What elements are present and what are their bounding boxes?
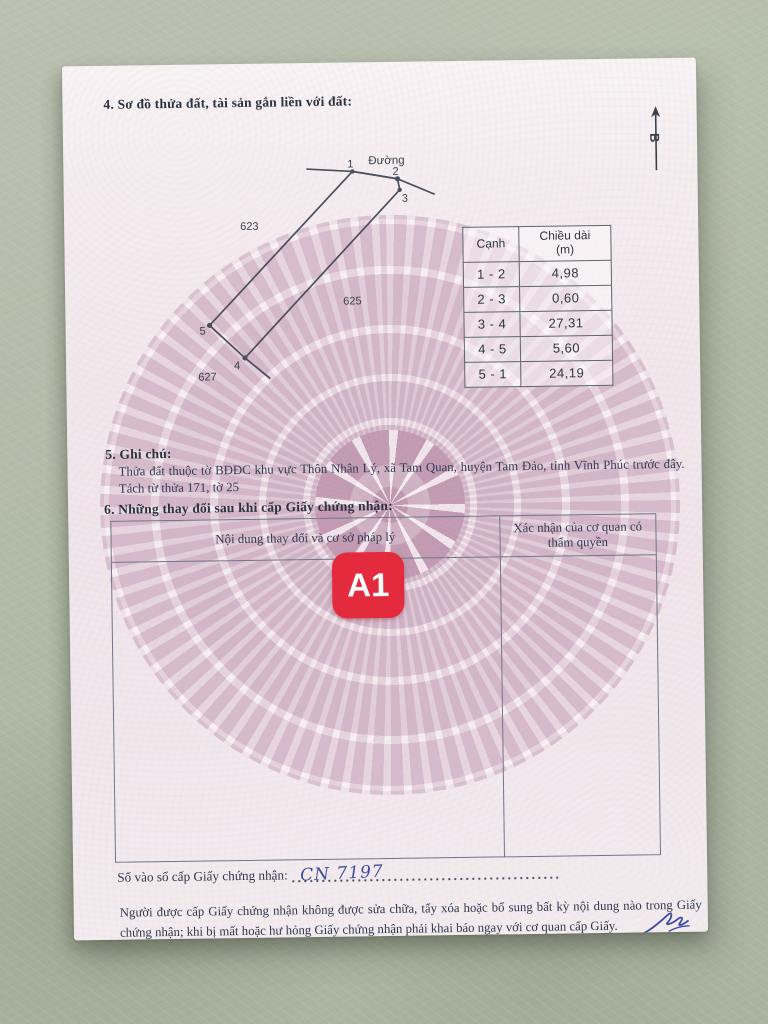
edge-cell: 3 - 4 <box>464 311 520 337</box>
register-number-line: Số vào sổ cấp Giấy chứng nhận: CN 7197 <box>117 861 677 886</box>
point-4-label: 4 <box>234 360 240 372</box>
parcel-625-label: 625 <box>343 295 362 307</box>
edge-column-header: Cạnh <box>463 227 519 262</box>
signature-mark <box>639 909 691 941</box>
north-arrow: B <box>641 104 682 175</box>
parcel-diagram: Đường 1 2 3 4 5 623 625 627 <box>193 153 458 405</box>
changes-confirm-header: Xác nhận của cơ quan có thẩm quyền <box>500 514 656 556</box>
footer-warning-text: Người được cấp Giấy chứng nhận không đượ… <box>120 896 702 941</box>
edge-table-body: 1 - 24,982 - 30,603 - 427,314 - 55,605 -… <box>463 260 613 387</box>
length-cell: 0,60 <box>520 285 612 311</box>
certificate-page: 4. Sơ đồ thửa đất, tài sản gắn liền với … <box>62 58 708 941</box>
changes-content-header: Nội dung thay đổi và cơ sở pháp lý <box>111 516 500 561</box>
section5-heading: 5. Ghi chú: <box>105 446 172 463</box>
north-label: B <box>647 133 662 143</box>
edge-table-header-row: Cạnh Chiều dài (m) <box>463 225 611 262</box>
edge-cell: 2 - 3 <box>464 286 520 312</box>
edge-length-table: Cạnh Chiều dài (m) 1 - 24,982 - 30,603 -… <box>462 225 613 388</box>
point-1-label: 1 <box>347 158 353 170</box>
length-header-line1: Chiều dài <box>539 228 590 243</box>
register-number-field: CN 7197 <box>290 863 558 884</box>
register-number-label: Số vào sổ cấp Giấy chứng nhận: <box>117 867 288 885</box>
length-cell: 27,31 <box>520 310 612 336</box>
point-5-label: 5 <box>200 325 206 337</box>
edge-cell: 4 - 5 <box>464 336 520 362</box>
point-2-label: 2 <box>392 166 398 178</box>
edge-table-row: 2 - 30,60 <box>464 285 612 312</box>
edge-table-row: 4 - 55,60 <box>464 335 612 362</box>
changes-content-cell <box>112 557 505 862</box>
parcel-623-label: 623 <box>240 221 259 233</box>
edge-table-row: 5 - 124,19 <box>465 360 613 387</box>
length-column-header: Chiều dài (m) <box>519 225 611 261</box>
parcel-diagram-svg: Đường 1 2 3 4 5 623 625 627 <box>193 153 458 405</box>
register-number-handwriting: CN 7197 <box>299 862 383 886</box>
edge-cell: 1 - 2 <box>463 261 519 287</box>
road-label: Đường <box>368 155 405 168</box>
length-cell: 4,98 <box>519 260 611 286</box>
signature-icon <box>639 909 691 940</box>
page-code-stamp: A1 <box>332 552 405 619</box>
edge-table-row: 3 - 427,31 <box>464 310 612 337</box>
length-header-line2: (m) <box>556 242 574 256</box>
section4-heading: 4. Sơ đồ thửa đất, tài sản gắn liền với … <box>103 93 352 112</box>
point-3-label: 3 <box>402 193 408 205</box>
edge-cell: 5 - 1 <box>465 361 521 387</box>
edge-table-row: 1 - 24,98 <box>463 260 611 287</box>
length-cell: 5,60 <box>520 335 612 361</box>
parcel-627-label: 627 <box>198 371 217 383</box>
changes-confirm-cell <box>500 555 660 857</box>
length-cell: 24,19 <box>521 360 613 386</box>
